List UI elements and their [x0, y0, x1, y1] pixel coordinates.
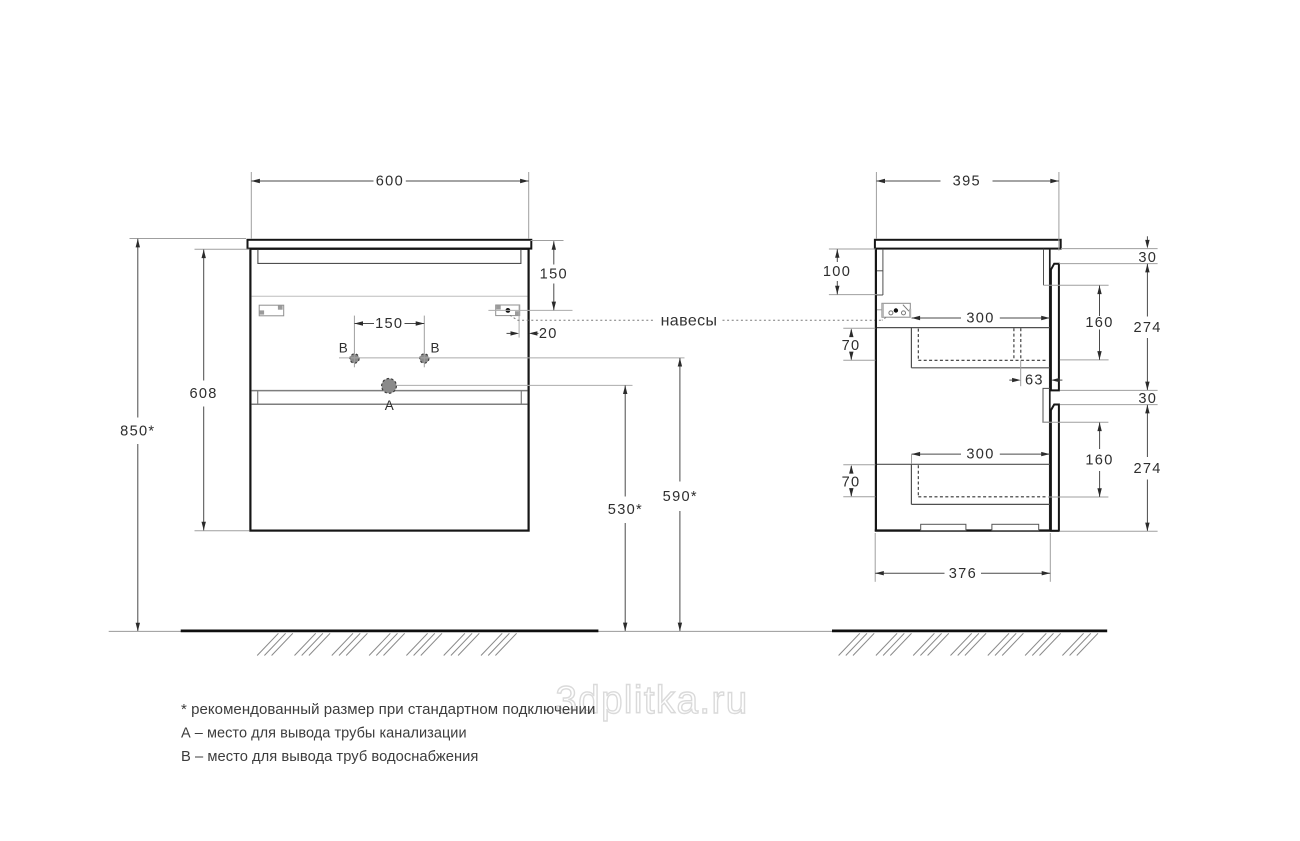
svg-text:навесы: навесы	[661, 313, 718, 330]
svg-text:850*: 850*	[120, 423, 155, 439]
svg-text:274: 274	[1133, 461, 1161, 477]
svg-text:* рекомендованный размер при с: * рекомендованный размер при стандартном…	[181, 701, 595, 718]
svg-text:274: 274	[1133, 320, 1161, 336]
svg-text:В – место для вывода труб водо: В – место для вывода труб водоснабжения	[181, 749, 478, 765]
svg-text:395: 395	[953, 174, 981, 190]
svg-text:30: 30	[1138, 250, 1157, 266]
svg-text:300: 300	[966, 447, 994, 463]
svg-text:63: 63	[1025, 373, 1044, 389]
svg-text:160: 160	[1085, 315, 1113, 331]
svg-text:160: 160	[1085, 452, 1113, 468]
svg-text:530*: 530*	[608, 502, 643, 518]
svg-text:376: 376	[949, 566, 977, 582]
svg-text:B: B	[339, 341, 348, 356]
svg-text:608: 608	[189, 386, 217, 402]
svg-text:300: 300	[966, 311, 994, 327]
svg-text:20: 20	[539, 326, 558, 342]
svg-text:А – место для вывода трубы кан: А – место для вывода трубы канализации	[181, 726, 467, 742]
svg-text:100: 100	[823, 264, 851, 280]
svg-text:B: B	[430, 341, 439, 356]
svg-text:150: 150	[540, 267, 568, 283]
svg-text:A: A	[385, 398, 394, 413]
svg-text:150: 150	[375, 316, 403, 332]
svg-text:590*: 590*	[663, 489, 698, 505]
svg-text:70: 70	[842, 338, 861, 354]
svg-text:70: 70	[842, 475, 861, 491]
svg-text:600: 600	[376, 174, 404, 190]
